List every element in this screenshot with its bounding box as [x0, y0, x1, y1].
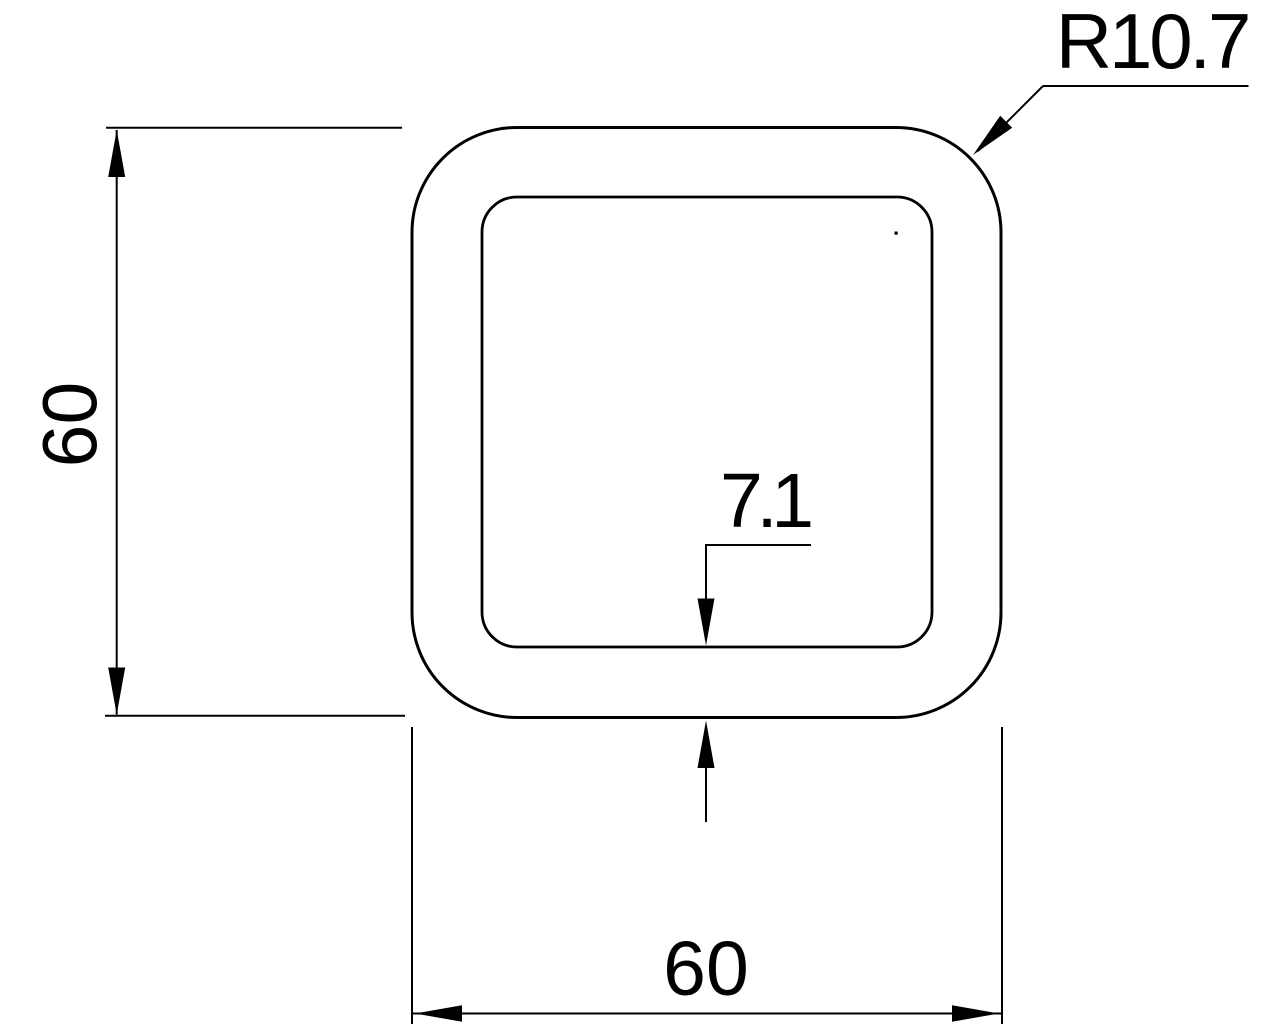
- svg-text:7.1: 7.1: [720, 458, 811, 544]
- svg-text:60: 60: [663, 926, 749, 1012]
- svg-text:60: 60: [28, 382, 114, 468]
- svg-text:R10.7: R10.7: [1056, 0, 1248, 85]
